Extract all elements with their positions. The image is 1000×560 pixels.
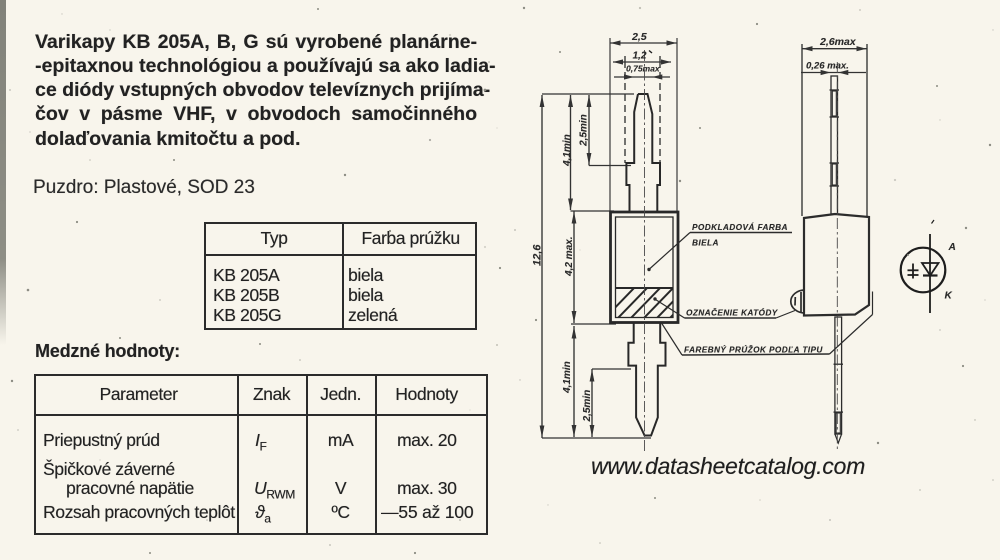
svg-text:2,6max: 2,6max <box>819 36 857 48</box>
svg-text:2,5min: 2,5min <box>579 114 590 147</box>
svg-text:A: A <box>948 242 956 253</box>
svg-text:12,6: 12,6 <box>532 244 544 266</box>
svg-text:4,1min: 4,1min <box>562 134 573 167</box>
svg-text:0,75max: 0,75max <box>626 64 661 74</box>
svg-text:PODKLADOVÁ FARBA: PODKLADOVÁ FARBA <box>692 222 788 232</box>
svg-text:1,2: 1,2 <box>633 51 647 62</box>
svg-text:2,5min: 2,5min <box>582 390 593 423</box>
svg-text:0,26 max.: 0,26 max. <box>806 61 849 72</box>
svg-text:4,1min: 4,1min <box>562 361 573 394</box>
svg-text:FAREBNÝ PRÚŽOK PODĽA TIPU: FAREBNÝ PRÚŽOK PODĽA TIPU <box>684 344 823 355</box>
svg-text:OZNAČENIE KATÓDY: OZNAČENIE KATÓDY <box>686 307 779 318</box>
svg-text:K: K <box>945 291 953 302</box>
svg-text:BIELA: BIELA <box>692 239 719 248</box>
svg-text:2,5: 2,5 <box>631 31 647 43</box>
svg-text:4,2 max.: 4,2 max. <box>564 237 575 277</box>
